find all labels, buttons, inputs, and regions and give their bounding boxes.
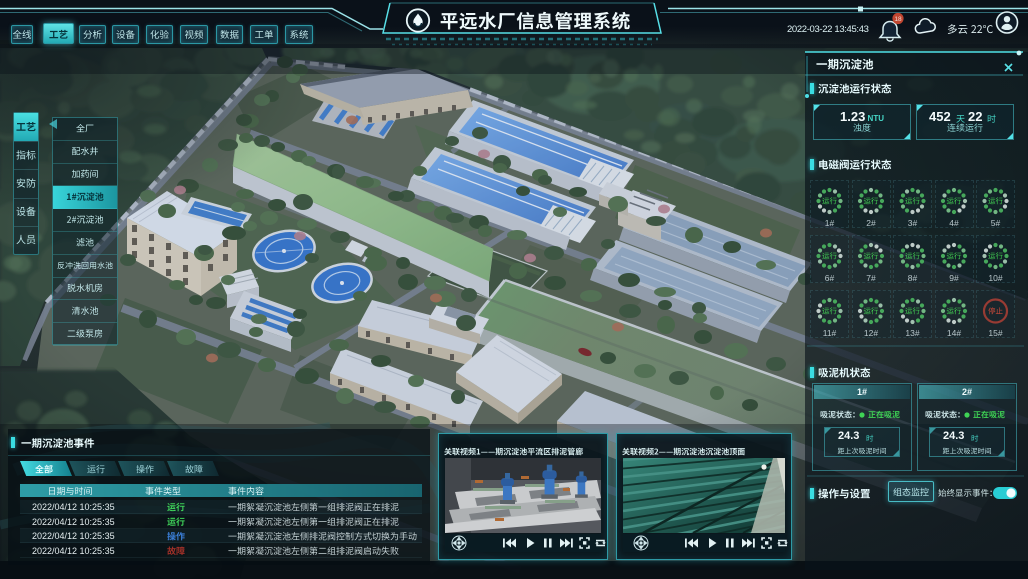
svg-text:18: 18 [894, 16, 902, 23]
